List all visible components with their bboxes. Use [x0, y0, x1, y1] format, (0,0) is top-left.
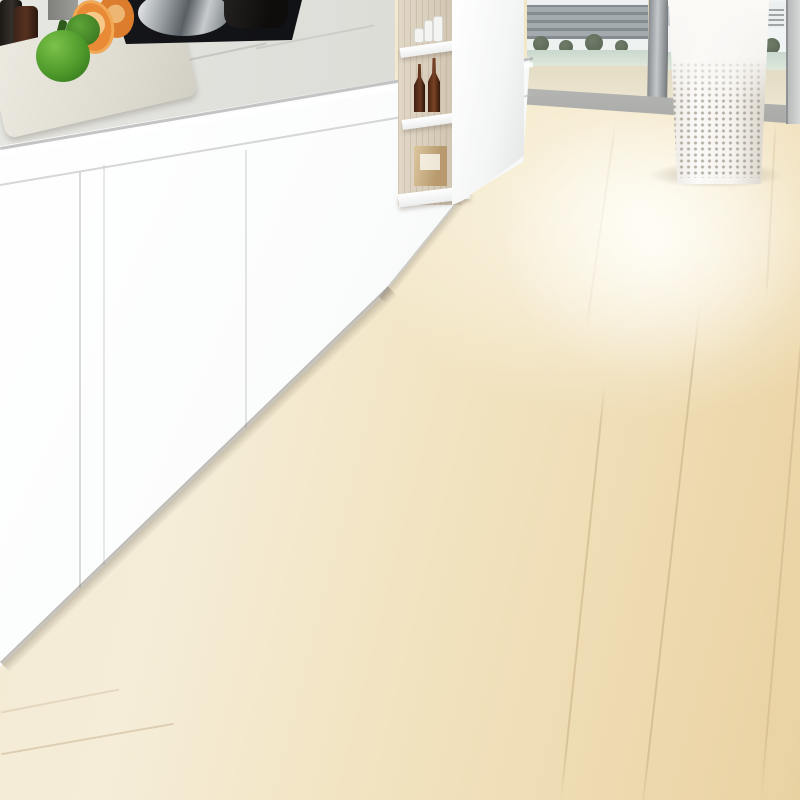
cabinet-seam: [79, 172, 81, 588]
window-frame-mullion: [647, 0, 669, 106]
white-column-vase: [664, 0, 774, 184]
display-digit: [20, 8, 23, 17]
display-digit: [8, 8, 16, 17]
glass-haze: [527, 0, 648, 98]
green-bell-pepper: [36, 30, 90, 82]
white-figurine: [424, 20, 433, 42]
kitchen-product-photo: [0, 0, 800, 800]
window-frame-right: [786, 0, 800, 124]
kraft-box: [414, 146, 447, 186]
cabinet-seam: [103, 165, 105, 565]
box-label: [420, 154, 440, 170]
glass-jar: [414, 28, 424, 43]
window-pane-left: [527, 0, 648, 98]
dark-pot: [224, 0, 288, 28]
column-highlight: [664, 0, 774, 184]
display-digit: [26, 8, 33, 17]
cabinet-seam: [245, 150, 247, 428]
white-figurine: [433, 16, 443, 42]
